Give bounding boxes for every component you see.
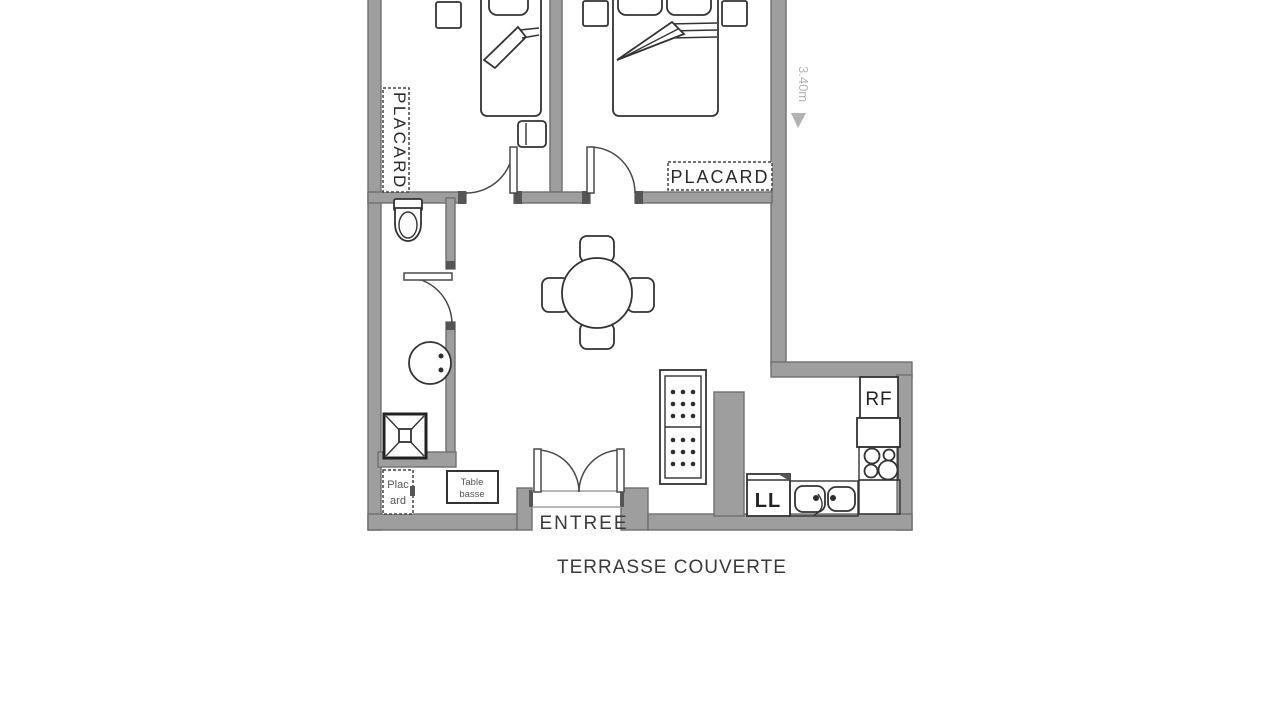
dining-set [542,236,654,349]
hall-closet: Plac ard [383,470,415,514]
entrance-double-door [532,449,624,507]
dining-table [562,258,632,328]
kitchen-cabinet-lower [859,480,900,514]
dimension-arrow-icon [791,113,806,128]
floor-plan-drawing: PLACARD PLACARD 3.40m [0,0,1280,720]
bedroom1-nightstand [436,2,461,28]
bedroom1-closet-label: PLACARD [390,92,409,190]
bedroom2-nightstand-right [722,1,747,26]
bedroom1-door [466,147,517,193]
bedroom2-double-bed [613,0,718,116]
bedroom1-single-bed [481,0,541,116]
fridge-label: RF [865,389,892,410]
bedroom2-closet-label: PLACARD [670,167,769,187]
bedroom2-closet: PLACARD [668,162,772,190]
kitchen-sink [790,481,858,516]
kitchen-cabinet-upper [857,418,900,447]
terrace-label: TERRASSE COUVERTE [557,557,787,578]
washing-machine: LL [747,474,790,516]
hall-closet-label-line1: Plac [387,479,409,491]
coffee-table-label-line1: Table [461,477,484,488]
bedroom1-wall-cabinet [518,121,546,147]
washing-machine-label: LL [755,490,781,512]
hall-closet-label-line2: ard [390,495,406,507]
fridge: RF [860,377,898,418]
coffee-table-label-line2: basse [459,489,484,500]
dimension-label: 3.40m [796,66,811,102]
floor-plan-canvas: PLACARD PLACARD 3.40m [0,0,1280,720]
bedroom1-closet: PLACARD [383,88,409,192]
bedroom2-nightstand-left [583,1,608,26]
stove [859,447,898,480]
dimension-marker: 3.40m [791,66,811,128]
shower [384,414,426,458]
coffee-table: Table basse [447,471,498,503]
washbasin [409,342,451,384]
bathroom-door [404,273,452,324]
toilet [394,199,422,241]
sofa [660,370,706,484]
bedroom2-door [587,147,635,193]
entrance-label: ENTREE [539,513,628,534]
